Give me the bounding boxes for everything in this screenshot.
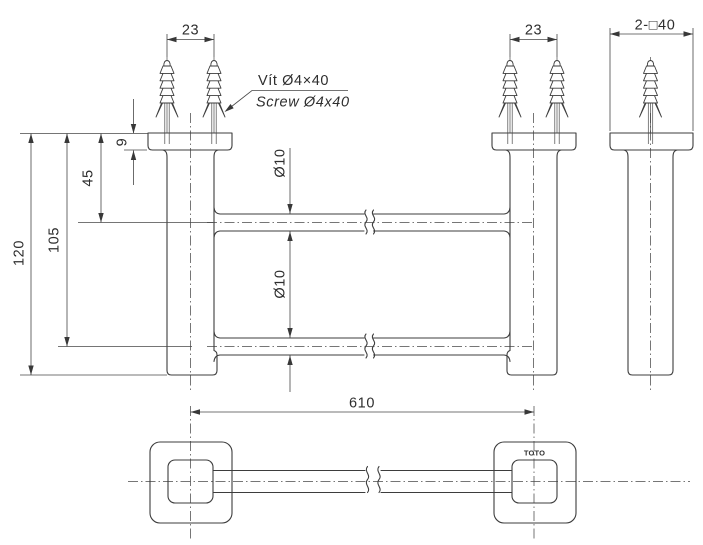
screw-label-en: Screw Ø4x40 [256, 95, 350, 111]
plan-view: TOTO [128, 406, 690, 540]
plan-bar-break-marks [366, 467, 380, 493]
side-view [610, 57, 693, 392]
dim-text-2sq40: 2-□40 [635, 18, 676, 34]
dim-text-105: 105 [47, 227, 63, 253]
front-view [148, 57, 576, 392]
dim-text-d10-top: Ø10 [273, 148, 289, 177]
dim-text-9: 9 [115, 138, 131, 147]
right-wall-flange [492, 133, 576, 150]
dim-screw-spacing-right: 23 [510, 23, 557, 58]
dim-flange-thickness: 9 [115, 99, 148, 185]
dim-bar-length: 610 [191, 396, 535, 415]
wall-anchor-icon [156, 57, 178, 144]
screw-label-vi: Vít Ø4×40 [258, 73, 329, 89]
left-plate-outer [150, 442, 232, 523]
wall-anchor-icon [546, 57, 568, 144]
wall-anchor-icon [640, 57, 662, 144]
side-wall-flange [610, 133, 693, 150]
wall-anchor-icon [203, 57, 225, 144]
left-wall-flange [148, 133, 232, 150]
towel-bar-drawing: TOTO 23 23 2-□40 Vít Ø4×40 Screw Ø4x40 [0, 0, 703, 545]
leader-arrowhead [225, 104, 234, 112]
arrowheads [131, 124, 136, 160]
dim-text-610: 610 [349, 396, 375, 412]
screw-callout: Vít Ø4×40 Screw Ø4x40 [225, 73, 350, 112]
dim-text-23-left: 23 [182, 23, 199, 39]
dim-text-d10-bottom: Ø10 [273, 269, 289, 298]
dim-screw-spacing-left: 23 [167, 23, 214, 58]
brand-logo: TOTO [524, 449, 545, 458]
dim-text-45: 45 [81, 169, 97, 186]
dim-text-23-right: 23 [525, 23, 542, 39]
dim-text-120: 120 [12, 240, 28, 266]
dims-left-heights: 120 105 45 [12, 134, 214, 376]
technical-drawing-page: TOTO 23 23 2-□40 Vít Ø4×40 Screw Ø4x40 [0, 0, 703, 545]
wall-anchor-icon [499, 57, 521, 144]
